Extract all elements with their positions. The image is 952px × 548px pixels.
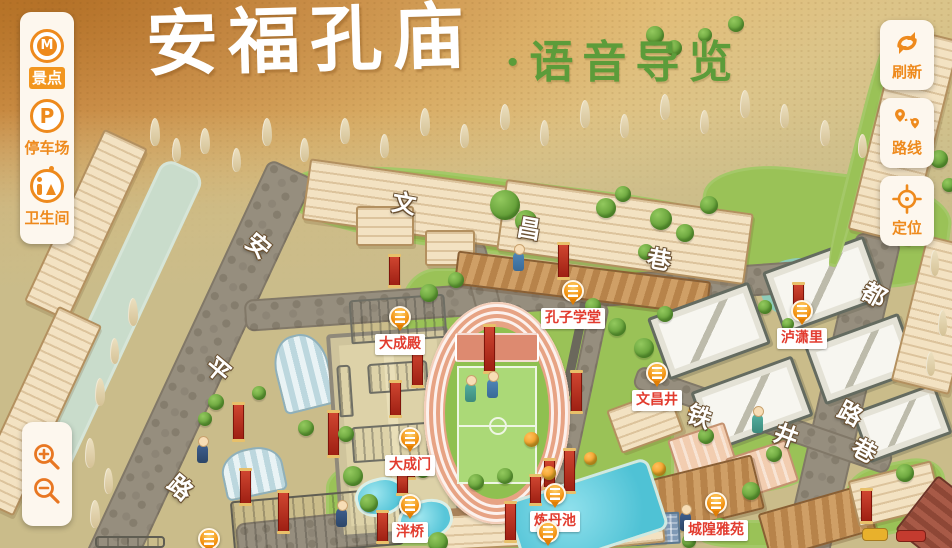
tree <box>428 532 448 548</box>
poplar-tree <box>110 338 119 364</box>
filter-parking[interactable]: P 停车场 <box>24 99 69 158</box>
poi-wenchangjing[interactable]: 文昌井 <box>632 362 682 411</box>
poi-label[interactable]: 大成门 <box>385 455 435 476</box>
figure-person <box>752 414 763 433</box>
audio-marker-icon[interactable] <box>562 280 584 302</box>
poplar-tree <box>300 138 309 162</box>
poi-dachengdian[interactable]: 大成殿 <box>375 306 425 355</box>
poplar-tree <box>926 352 935 376</box>
poplar-tree <box>85 438 95 468</box>
poplar-tree <box>500 104 510 130</box>
poplar-tree <box>580 100 590 128</box>
tree <box>758 300 772 314</box>
audio-marker-icon[interactable] <box>389 306 411 328</box>
page-title: 安福孔庙 <box>145 0 475 83</box>
orange-tree <box>524 432 539 447</box>
poi-label[interactable]: 泸潇里 <box>777 328 827 349</box>
button-label[interactable]: 定位 <box>892 217 922 238</box>
marker-bars <box>568 285 578 297</box>
tree <box>942 178 952 192</box>
orange-tree <box>542 466 556 480</box>
tree <box>497 468 513 484</box>
restroom-figures <box>37 177 56 195</box>
poi-label[interactable]: 大成殿 <box>375 334 425 355</box>
filter-label[interactable]: 景点 <box>29 67 65 89</box>
poi-label[interactable]: 文昌井 <box>632 390 682 411</box>
poplar-tree <box>380 134 389 158</box>
marker-bars <box>797 305 807 317</box>
audio-marker-icon[interactable] <box>537 521 559 543</box>
scenic-spot-icon: M <box>30 29 64 63</box>
audio-marker-icon[interactable] <box>544 483 566 505</box>
refresh-button[interactable]: 刷新 <box>880 20 934 90</box>
audio-marker-icon[interactable] <box>198 528 220 548</box>
poplar-tree <box>104 468 113 494</box>
poplar-tree <box>420 108 430 136</box>
orange-tree <box>584 452 597 465</box>
figure-person <box>465 383 476 402</box>
marker-bars <box>405 499 415 511</box>
figure-person <box>336 508 347 527</box>
filter-scenic-spots[interactable]: M 景点 <box>29 29 65 89</box>
audio-marker-icon[interactable] <box>399 494 421 516</box>
marker-bars <box>550 488 560 500</box>
tree <box>700 196 718 214</box>
tree <box>468 474 484 490</box>
orange-tree <box>652 462 666 476</box>
audio-marker-icon[interactable] <box>705 492 727 514</box>
poplar-tree <box>620 114 629 138</box>
poi-label[interactable]: 城隍雅苑 <box>684 520 748 541</box>
map-canvas[interactable]: 安 平 路 文 昌 巷 都 路 巷 铁 井 大成殿 孔子学堂 泸潇里 文昌井 大… <box>0 0 952 548</box>
figure-person <box>487 379 498 398</box>
crosshair-icon <box>892 184 922 214</box>
poplar-tree <box>262 118 272 146</box>
parking-p-glyph: P <box>40 104 55 128</box>
tree <box>676 224 694 242</box>
poplar-tree <box>128 298 138 326</box>
poi-filter-panel: M 景点 P 停车场 卫生间 <box>20 12 74 244</box>
poplar-tree <box>660 94 670 120</box>
poplar-tree <box>460 124 469 148</box>
route-button[interactable]: 路线 <box>880 98 934 168</box>
poplar-tree <box>930 250 939 276</box>
tree <box>657 306 673 322</box>
poi-label[interactable]: 泮桥 <box>392 522 428 543</box>
filter-label[interactable]: 卫生间 <box>24 207 69 228</box>
button-label[interactable]: 路线 <box>892 137 922 158</box>
parking-icon: P <box>30 99 64 133</box>
audio-marker-icon[interactable] <box>399 427 421 449</box>
poplar-tree <box>740 90 750 118</box>
marker-bars <box>652 367 662 379</box>
poi-chenghuangyayuan[interactable]: 城隍雅苑 <box>684 492 748 541</box>
poi-kongzixuetang[interactable]: 孔子学堂 <box>541 280 605 329</box>
poplar-tree <box>938 310 947 336</box>
tree <box>608 318 626 336</box>
tree <box>298 420 314 436</box>
refresh-icon <box>892 28 922 58</box>
poi-luxiaoli[interactable]: 泸潇里 <box>777 300 827 349</box>
scenic-pin-glyph: M <box>37 36 57 56</box>
tree <box>420 284 438 302</box>
poplar-tree <box>150 118 160 146</box>
street-char-wenchangxiang: 巷 <box>645 246 673 274</box>
zoom-panel <box>22 422 72 526</box>
restroom-icon <box>30 169 64 203</box>
tree <box>343 466 363 486</box>
figure-person <box>197 444 208 463</box>
audio-marker-icon[interactable] <box>791 300 813 322</box>
button-label[interactable]: 刷新 <box>892 61 922 82</box>
female-figure-glyph <box>46 184 56 195</box>
tree <box>360 494 378 512</box>
tree <box>252 386 266 400</box>
poplar-tree <box>95 378 105 406</box>
poplar-tree <box>540 120 549 146</box>
tree <box>650 208 672 230</box>
filter-label[interactable]: 停车场 <box>24 137 69 158</box>
poplar-tree <box>700 110 709 134</box>
poplar-tree <box>200 128 210 154</box>
locate-button[interactable]: 定位 <box>880 176 934 246</box>
marker-bars <box>405 432 415 444</box>
tree <box>596 198 616 218</box>
tree <box>634 338 654 358</box>
poi-panqiao[interactable]: 泮桥 <box>392 494 428 543</box>
magnifier-minus-icon <box>30 474 64 508</box>
poi-label[interactable]: 孔子学堂 <box>541 308 605 329</box>
poplar-tree <box>232 148 241 172</box>
magnifier-plus-icon <box>30 440 64 474</box>
tree <box>615 186 631 202</box>
marker-bars <box>204 533 214 545</box>
street-char-wenchangxiang: 文 <box>390 190 418 218</box>
poi-dachengmen[interactable]: 大成门 <box>385 427 435 476</box>
audio-marker-icon[interactable] <box>646 362 668 384</box>
figure-person <box>513 252 524 271</box>
tree <box>208 394 224 410</box>
street-char-wenchangxiang: 昌 <box>515 215 543 243</box>
male-figure-glyph <box>37 184 42 195</box>
marker-bars <box>711 497 721 509</box>
page-subtitle: ·语音导览 <box>505 26 741 90</box>
tree <box>448 272 464 288</box>
poplar-tree <box>820 120 830 146</box>
tree <box>198 412 212 426</box>
poplar-tree <box>90 500 100 528</box>
poi-zhuangyuanqiao[interactable]: 状元桥 <box>523 521 573 548</box>
poplar-tree <box>340 118 350 144</box>
poplar-tree <box>172 138 181 162</box>
poplar-tree <box>858 134 867 158</box>
tree-group <box>0 0 952 548</box>
tree <box>896 464 914 482</box>
tree <box>338 426 354 442</box>
route-pins-icon <box>891 108 923 134</box>
marker-bars <box>395 311 405 323</box>
poplar-tree <box>780 104 789 128</box>
marker-bars <box>543 526 553 538</box>
filter-restroom[interactable]: 卫生间 <box>24 169 69 228</box>
